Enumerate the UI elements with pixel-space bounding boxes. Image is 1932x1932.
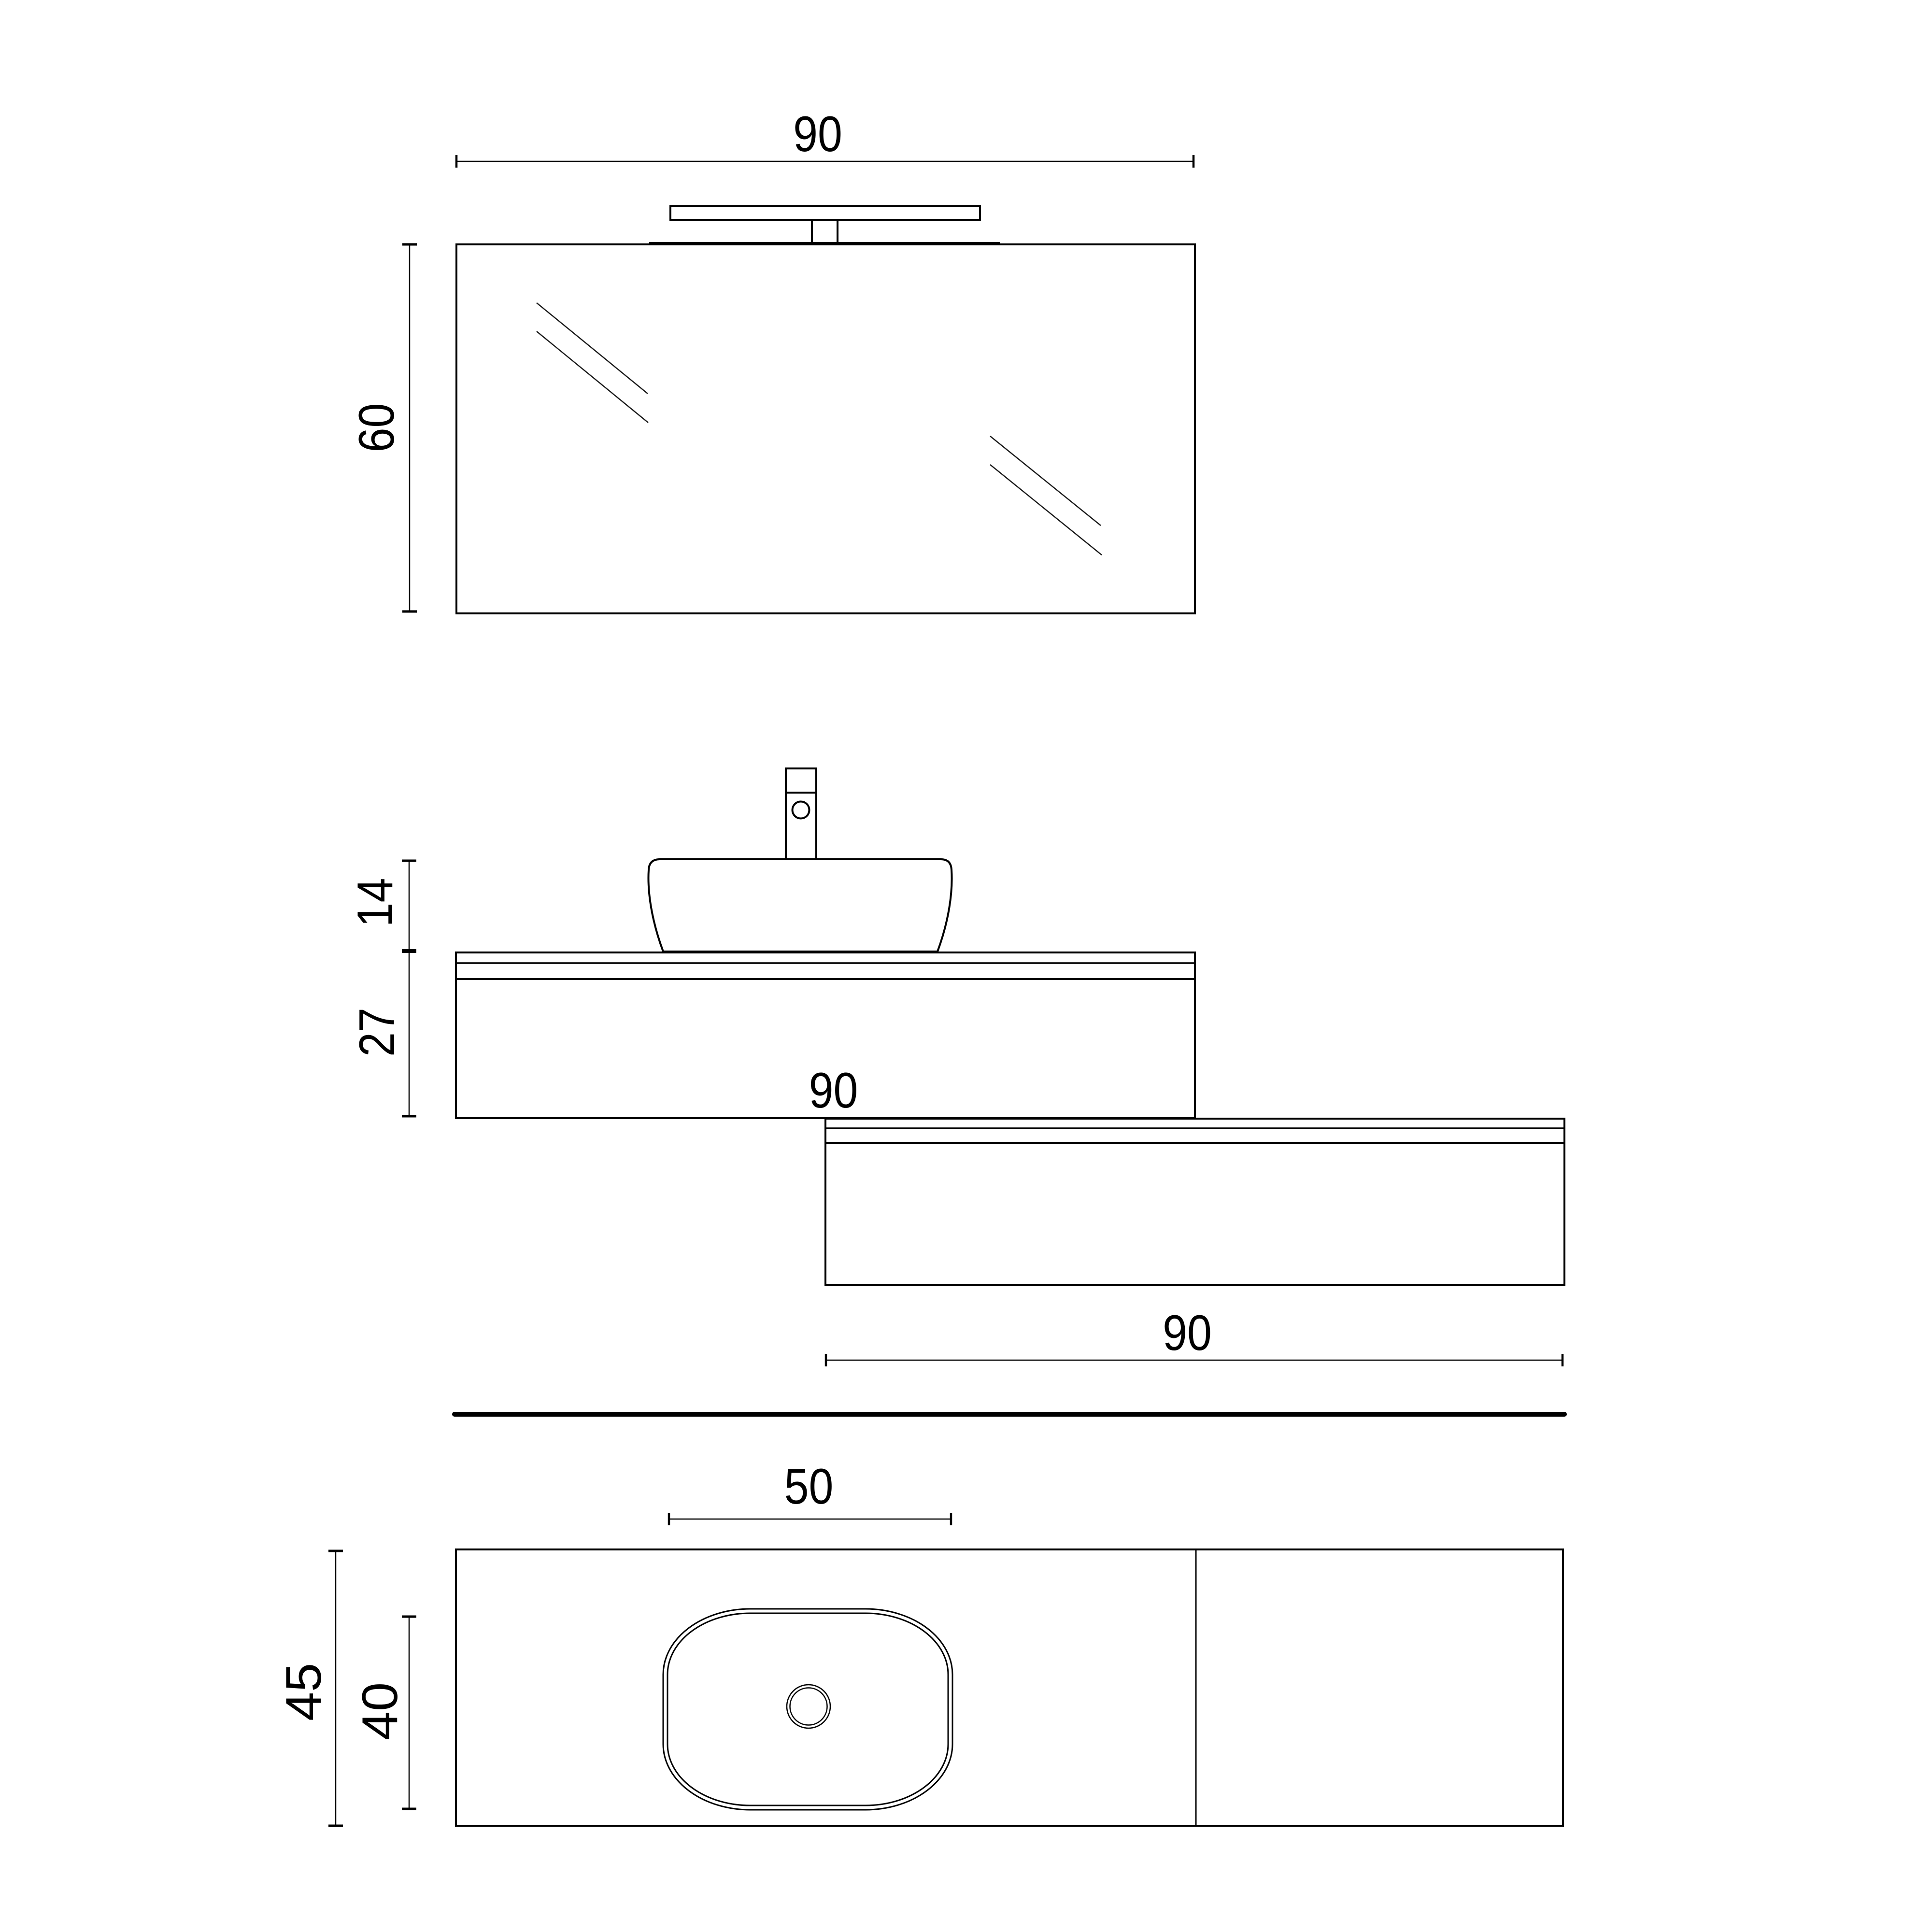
svg-text:90: 90 — [793, 106, 842, 162]
svg-text:50: 50 — [784, 1458, 834, 1515]
svg-text:90: 90 — [1163, 1305, 1212, 1361]
svg-text:45: 45 — [276, 1663, 332, 1721]
svg-text:60: 60 — [348, 403, 405, 453]
svg-text:27: 27 — [349, 1008, 405, 1057]
svg-text:14: 14 — [347, 878, 403, 927]
svg-text:90: 90 — [809, 1062, 858, 1119]
svg-text:40: 40 — [352, 1682, 408, 1740]
